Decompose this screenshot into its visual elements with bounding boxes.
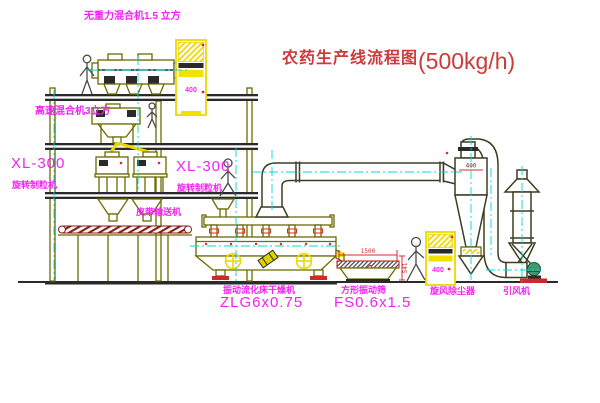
label-fan: 引风机 bbox=[503, 287, 530, 296]
label-high-speed-mixer: 高速混合机3立方 bbox=[35, 107, 111, 117]
label-gravity-free-mixer: 无重力混合机1.5 立方 bbox=[84, 12, 181, 22]
label-dryer-model: ZLG6x0.75 bbox=[220, 295, 303, 310]
label-belt-conveyor: 皮带输送机 bbox=[136, 208, 181, 217]
cabinet-a-label: 400 bbox=[185, 87, 197, 94]
flow-diagram-page: 400 bbox=[0, 0, 600, 403]
control-cabinet-b: 400 bbox=[426, 232, 455, 285]
label-granulator-right-model: XL-300 bbox=[176, 159, 230, 174]
dryer-feed-hopper bbox=[212, 199, 234, 218]
dim-sieve-height: 541 bbox=[402, 262, 409, 273]
fluid-bed-dryer bbox=[196, 215, 344, 280]
label-cyclone: 旋风除尘器 bbox=[430, 287, 475, 296]
ground-line bbox=[18, 281, 558, 285]
dim-sieve-length: 1500 bbox=[361, 248, 376, 255]
belt-conveyor bbox=[58, 226, 192, 281]
vibrating-sieve: 1500 541 bbox=[337, 248, 409, 283]
induced-draft-fan bbox=[506, 263, 547, 284]
label-granulator-right-name: 旋转制粒机 bbox=[177, 184, 222, 193]
granulator-left bbox=[95, 152, 129, 192]
title-text: 农药生产线流程图 bbox=[282, 50, 418, 67]
label-sieve-model: FS0.6x1.5 bbox=[334, 295, 411, 310]
person-figure-ground bbox=[407, 238, 425, 282]
label-granulator-left-name: 旋转制粒机 bbox=[12, 181, 57, 190]
label-granulator-left-model: XL-300 bbox=[11, 156, 65, 171]
page-title: 农药生产线流程图(500kg/h) bbox=[282, 44, 515, 75]
exhaust-duct bbox=[256, 152, 456, 217]
title-capacity: (500kg/h) bbox=[418, 48, 515, 74]
control-cabinet-a: 400 bbox=[176, 40, 206, 115]
cyclone-separator: 400 bbox=[455, 139, 506, 278]
cabinet-b-label: 400 bbox=[432, 267, 444, 274]
